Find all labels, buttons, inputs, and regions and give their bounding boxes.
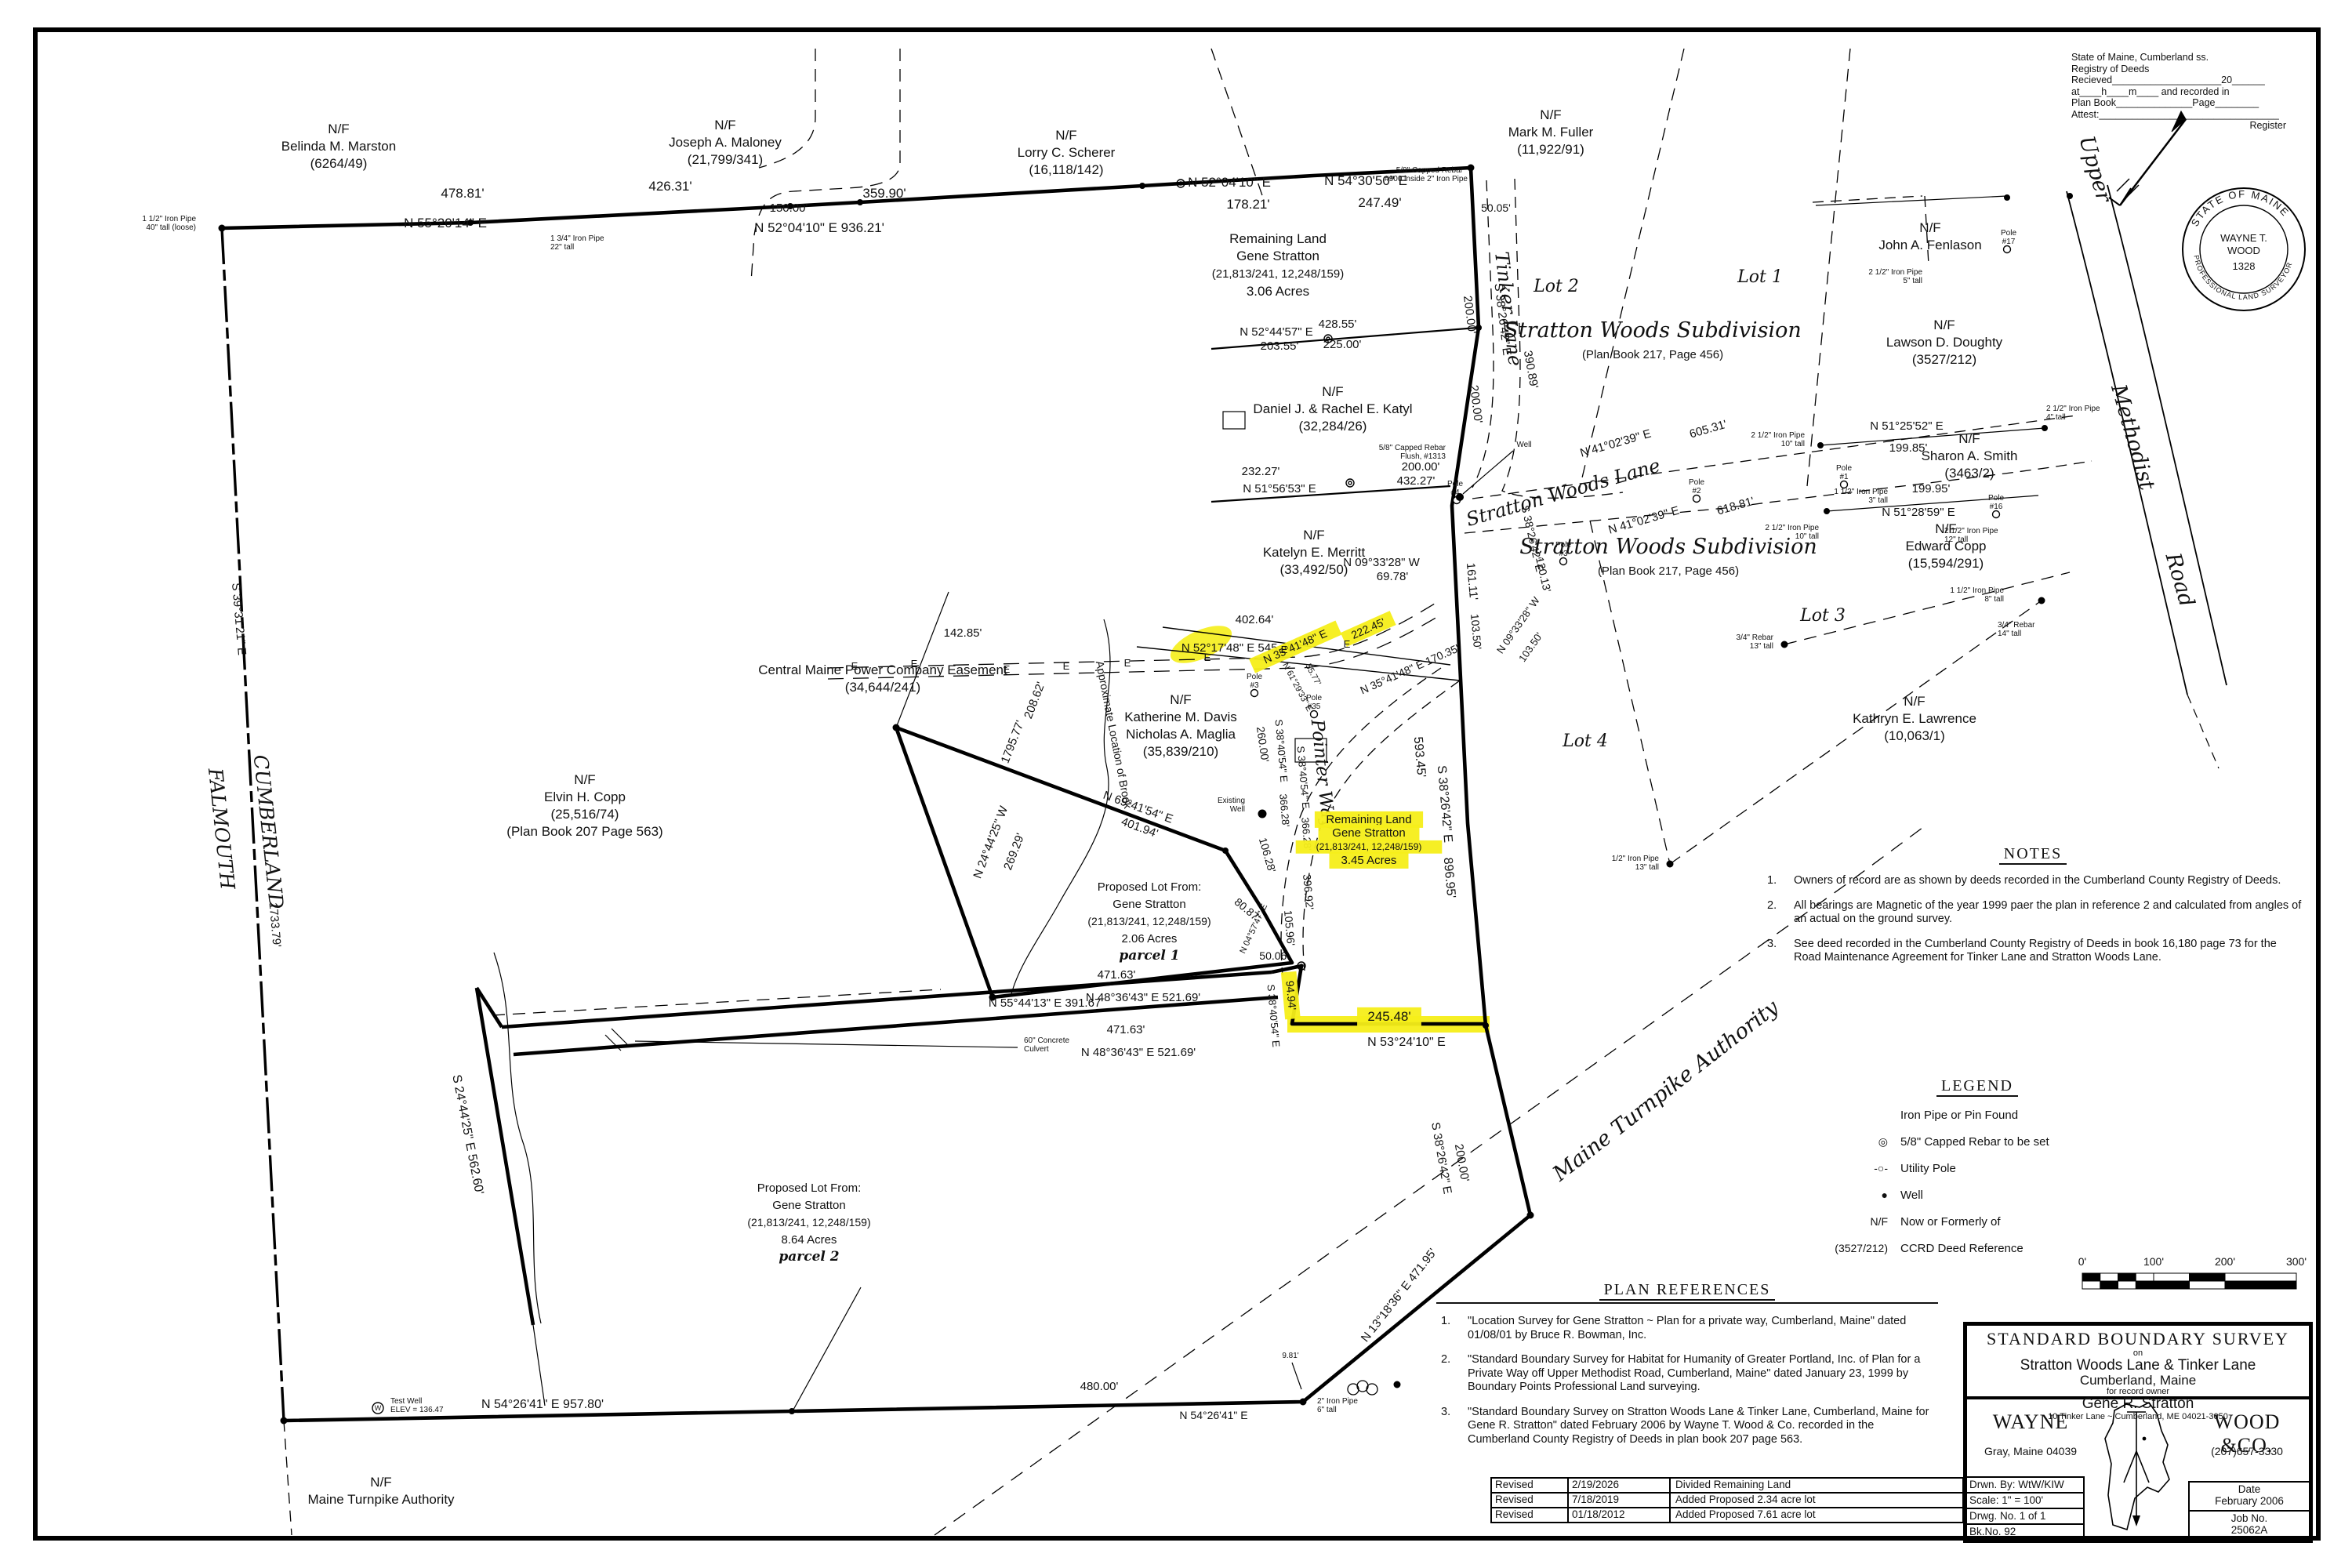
map-label: 1 1/2" Iron Pipe — [1950, 586, 2004, 595]
map-label: 8" tall — [1984, 595, 2004, 604]
registry-line: Registry of Deeds — [2071, 64, 2291, 75]
map-label: parcel 1 — [1119, 948, 1179, 964]
map-label: S 38°26'42" E — [1428, 1121, 1454, 1195]
map-label: 0' — [2078, 1255, 2086, 1268]
map-label: (21,813/241, 12,248/159) — [747, 1216, 870, 1229]
map-label: S 38°40'54" E — [1295, 746, 1312, 810]
map-label: E — [1344, 638, 1351, 650]
map-label: Well — [1230, 805, 1245, 814]
legend-label: Well — [1900, 1189, 1923, 1202]
legend-symbol: ● — [1820, 1189, 1900, 1201]
map-label: E — [1281, 644, 1288, 655]
well-icons — [372, 494, 1464, 1414]
survey-title: STANDARD BOUNDARY SURVEY — [1967, 1329, 2309, 1349]
map-label: Nicholas A. Maglia — [1126, 727, 1236, 742]
map-label: N/F — [714, 118, 735, 132]
revision-description: Added Proposed 2.34 acre lot — [1671, 1494, 1962, 1507]
map-label: 480.00' — [1080, 1380, 1119, 1393]
map-label: N 53°24'10" E — [1367, 1036, 1446, 1049]
map-label: 593.45' — [1411, 736, 1428, 778]
map-labels: 478.81'N 55°20'14" E426.31'150.00'359.90… — [142, 107, 2307, 1507]
map-label: #1 — [1839, 473, 1849, 481]
map-label: 432.27' — [1397, 474, 1436, 488]
map-label: (34,644/241) — [845, 680, 920, 695]
date-value: February 2006 — [2190, 1495, 2309, 1507]
map-label: 3/4" Rebar — [1998, 621, 2035, 630]
map-label: 199.85' — [1889, 441, 1928, 455]
map-label: 200' — [2215, 1255, 2235, 1268]
map-label: 150.00' — [770, 201, 808, 215]
map-label: 22" tall — [550, 243, 574, 252]
map-label: 3/4" Rebar — [1737, 633, 1774, 642]
map-label: 2 1/2" Iron Pipe — [1868, 268, 1922, 277]
map-label: 105.96' — [1282, 909, 1298, 946]
map-label: Upper — [2074, 133, 2116, 206]
map-label: 50.05' — [1481, 201, 1511, 214]
map-label: Lawson D. Doughty — [1886, 335, 2003, 350]
map-label: Existing — [1218, 797, 1245, 805]
map-label: Lot 2 — [1533, 277, 1579, 296]
map-label: #35 — [1308, 702, 1321, 711]
map-label: 103.50' — [1516, 630, 1545, 664]
map-label: N/F — [328, 122, 349, 136]
map-label: #900 inside 2" Iron Pipe — [1385, 175, 1468, 183]
map-label: 618.81' — [1715, 495, 1756, 518]
map-label: 13" tall — [1750, 642, 1773, 651]
map-label: Pole — [1836, 464, 1852, 473]
firm-name-left: WAYNE — [1972, 1410, 2089, 1434]
survey-location: Stratton Woods Lane & Tinker Lane — [1967, 1358, 2309, 1374]
map-label: N 52°04'10" E 936.21' — [754, 220, 884, 235]
map-label: N 54°26'41" E 957.80' — [481, 1398, 604, 1411]
map-label: Lot 1 — [1737, 267, 1783, 287]
map-label: Remaining Land — [1326, 813, 1411, 826]
monument-symbols — [219, 165, 2073, 1424]
map-label: 208.62' — [1022, 680, 1047, 720]
map-label: 200.00' — [1467, 384, 1485, 424]
map-label: Pole — [1247, 673, 1262, 681]
map-label: #17 — [2002, 238, 2016, 246]
revision-row: Revised 01/18/2012 Added Proposed 7.61 a… — [1490, 1507, 1964, 1523]
map-label: N 35°41'48" E 170.35' — [1358, 641, 1461, 696]
map-label: 402.64' — [1236, 613, 1274, 626]
map-label: 120.13' — [1534, 556, 1554, 593]
map-label: N/F — [1919, 220, 1940, 235]
map-label: (21,799/341) — [688, 152, 763, 167]
map-label: 94.94' — [1283, 980, 1298, 1011]
map-label: 40" tall (loose) — [146, 223, 196, 232]
legend-symbol: N/F — [1820, 1215, 1900, 1228]
legend-label: Utility Pole — [1900, 1162, 1956, 1175]
map-label: Mark M. Fuller — [1508, 125, 1594, 140]
map-label: N 41°02'39" E — [1579, 427, 1653, 460]
map-label: N 09°33'28" W — [1343, 556, 1420, 569]
legend-symbol: -○- — [1820, 1162, 1900, 1174]
map-label: Test Well — [390, 1397, 422, 1406]
map-label: 1795.77' — [999, 719, 1027, 766]
map-label: Gene Stratton — [1236, 249, 1319, 263]
map-label: 13" tall — [1635, 863, 1659, 872]
map-label: 1733.79' — [267, 902, 284, 947]
map-label: 5/8" Capped Rebar — [1396, 166, 1464, 175]
legend-label: 5/8" Capped Rebar to be set — [1900, 1135, 2049, 1149]
map-label: 103.50' — [1468, 613, 1484, 650]
note-item: 3.See deed recorded in the Cumberland Co… — [1762, 938, 2303, 965]
map-label: ELEV = 136.47 — [390, 1406, 444, 1414]
map-label: S 38°40'54" E — [1273, 719, 1290, 783]
map-label: 1 1/2" Iron Pipe — [1834, 488, 1888, 496]
stamp-arc-top: STATE OF MAINE — [2189, 188, 2292, 228]
map-label: Gene Stratton — [772, 1199, 845, 1212]
map-label: 5/8" Capped Rebar — [1379, 444, 1446, 452]
map-label: 300' — [2286, 1255, 2307, 1268]
map-label: 366.28' — [1277, 793, 1292, 827]
map-label: N/F — [370, 1475, 391, 1490]
legend-label: Iron Pipe or Pin Found — [1900, 1109, 2018, 1122]
map-label: Central Maine Power Company Easement — [758, 662, 1007, 677]
sheet-border — [35, 30, 2318, 1538]
legend-item: N/F Now or Formerly of — [1820, 1215, 2134, 1229]
map-label: 3.45 Acres — [1341, 854, 1397, 867]
legend-title: LEGEND — [1820, 1077, 2134, 1095]
map-label: Joseph A. Maloney — [669, 135, 782, 150]
map-label: (Plan Book 207 Page 563) — [506, 824, 662, 839]
iron-pipe-found-icons — [219, 165, 2073, 1424]
map-label: parcel 2 — [779, 1249, 839, 1265]
map-label: 60" Concrete — [1024, 1036, 1069, 1045]
map-label: 200.00' — [1452, 1143, 1472, 1183]
map-label: 426.31' — [648, 179, 691, 194]
divider — [1436, 1302, 1938, 1304]
map-label: 142.85' — [944, 626, 982, 640]
map-label: Remaining Land — [1229, 231, 1327, 246]
map-label: Maine Turnpike Authority — [1548, 995, 1784, 1187]
map-label: Sharon A. Smith — [1922, 448, 2018, 463]
map-label: 245.48' — [1367, 1009, 1410, 1024]
title-block: STANDARD BOUNDARY SURVEY on Stratton Woo… — [1963, 1322, 2313, 1543]
map-label: 1/2" Iron Pipe — [1612, 855, 1660, 863]
map-label: 390.89' — [1521, 350, 1541, 390]
notes-list: 1.Owners of record are as shown by deeds… — [1762, 874, 2303, 965]
legend-symbol: (3527/212) — [1820, 1242, 1900, 1254]
map-label: (21,813/241, 12,248/159) — [1212, 267, 1344, 281]
map-label: 178.21' — [1226, 197, 1269, 212]
map-label: 478.81' — [441, 186, 484, 201]
note-item: 2.All bearings are Magnetic of the year … — [1762, 899, 2303, 927]
map-label: 10" tall — [1795, 532, 1819, 541]
map-label: Proposed Lot From: — [757, 1181, 862, 1195]
drawing-number: Drwg. No. 1 of 1 — [1967, 1508, 2083, 1523]
registry-line: at____h____m____ and recorded in — [2071, 86, 2291, 98]
map-label: 4" tall — [2046, 413, 2066, 422]
revision-date: 01/18/2012 — [1569, 1508, 1671, 1522]
legend-item: ◎ 5/8" Capped Rebar to be set — [1820, 1135, 2134, 1149]
map-label: Stratton Woods Subdivision — [1504, 318, 1802, 343]
map-label: (Plan Book 217, Page 456) — [1582, 348, 1723, 361]
map-label: 203.55' — [1261, 339, 1299, 353]
map-label: 896.95' — [1441, 857, 1457, 898]
map-label: N 55°20'14" E — [404, 216, 487, 230]
map-label: 3.06 Acres — [1247, 284, 1309, 299]
map-label: N 51°25'52" E — [1870, 419, 1943, 433]
map-label: Proposed Lot From: — [1098, 880, 1202, 894]
map-label: (15,594/291) — [1908, 556, 1984, 571]
map-label: S 24°44'25" E 562.60' — [449, 1073, 485, 1196]
map-label: 2 1/2" Iron Pipe — [1765, 524, 1819, 532]
map-label: Elvin H. Copp — [544, 789, 626, 804]
scale: Scale: 1" = 100' — [1967, 1492, 2083, 1508]
map-label: 471.63' — [1107, 1023, 1145, 1036]
stamp-name-2: WOOD — [2227, 245, 2260, 256]
map-label: 225.00' — [1323, 338, 1362, 351]
notes-block: NOTES 1.Owners of record are as shown by… — [1762, 845, 2303, 965]
map-label: 1 1/2" Iron Pipe — [142, 215, 196, 223]
wayne-wood-logo — [2091, 1401, 2185, 1534]
map-label: N/F — [1958, 431, 1980, 446]
note-item: 1.Owners of record are as shown by deeds… — [1762, 874, 2303, 888]
map-label: Katherine M. Davis — [1124, 710, 1237, 724]
drawing-info-table: Drwn. By: WtW/KIW Scale: 1" = 100' Drwg.… — [1965, 1476, 2085, 1541]
revision-description: Added Proposed 7.61 acre lot — [1671, 1508, 1962, 1522]
stamp-name-1: WAYNE T. — [2220, 232, 2267, 244]
map-label: Pole — [1689, 478, 1704, 487]
map-label: 605.31' — [1688, 418, 1729, 441]
map-label: E — [1063, 660, 1070, 672]
revision-label: Revised — [1492, 1494, 1569, 1507]
plan-references-block: PLAN REFERENCES 1."Location Survey for G… — [1436, 1281, 1938, 1446]
map-label: Kathryn E. Lawrence — [1853, 711, 1976, 726]
map-label: 269.29' — [1001, 831, 1027, 872]
job-value: 25062A — [2190, 1524, 2309, 1536]
map-label: Daniel J. & Rachel E. Katyl — [1253, 401, 1412, 416]
map-label: N 13°18'36" E 471.95' — [1359, 1246, 1440, 1345]
map-label: (11,922/91) — [1517, 142, 1584, 157]
plan-reference-item: 3."Standard Boundary Survey on Stratton … — [1436, 1406, 1938, 1447]
map-label: (32,284/26) — [1299, 419, 1367, 434]
notes-title: NOTES — [1762, 845, 2303, 863]
map-label: 161.11' — [1464, 562, 1480, 601]
map-label: #4 — [1450, 488, 1460, 497]
plan-reference-item: 2."Standard Boundary Survey for Habitat … — [1436, 1353, 1938, 1395]
survey-sheet: STATE OF MAINE PROFESSIONAL LAND SURVEYO… — [0, 0, 2352, 1568]
map-label: 222.45' — [1349, 615, 1387, 641]
map-label: N/F — [1540, 107, 1561, 122]
map-label: 50.06' — [1259, 949, 1289, 962]
map-label: N/F — [1303, 528, 1324, 543]
legend-item: ● Well — [1820, 1189, 2134, 1202]
svg-text:STATE OF MAINE: STATE OF MAINE — [2189, 188, 2292, 228]
map-label: Culvert — [1024, 1045, 1049, 1054]
survey-town: Cumberland, Maine — [1967, 1374, 2309, 1388]
map-label: W — [375, 1404, 382, 1412]
map-label: N 51°56'53" E — [1243, 482, 1316, 495]
legend-list: Iron Pipe or Pin Found ◎ 5/8" Capped Reb… — [1820, 1109, 2134, 1255]
map-label: Maine Turnpike Authority — [307, 1492, 455, 1507]
title-block-heading: STANDARD BOUNDARY SURVEY on Stratton Woo… — [1967, 1326, 2309, 1399]
map-label: 2 1/2" Iron Pipe — [1944, 527, 1998, 535]
map-label: N 51°28'59" E — [1882, 506, 1955, 519]
registry-line: Recieved____________________20______ — [2071, 74, 2291, 86]
legend-block: LEGEND Iron Pipe or Pin Found ◎ 5/8" Cap… — [1820, 1077, 2134, 1255]
map-label: Pole — [1988, 494, 2004, 503]
map-label: 471.63' — [1098, 968, 1136, 982]
legend-label: CCRD Deed Reference — [1900, 1242, 2024, 1255]
map-label: (33,492/50) — [1280, 562, 1348, 577]
map-label: 9.81' — [1282, 1352, 1298, 1360]
map-label: 10" tall — [1781, 440, 1805, 448]
revision-label: Revised — [1492, 1508, 1569, 1522]
registry-register: Register — [2071, 120, 2291, 132]
map-label: N/F — [1055, 128, 1076, 143]
map-label: Gene Stratton — [1332, 826, 1405, 840]
surveyor-stamp: STATE OF MAINE PROFESSIONAL LAND SURVEYO… — [2183, 188, 2305, 310]
legend-symbol: ◎ — [1820, 1135, 1900, 1149]
map-label: John A. Fenlason — [1878, 238, 1981, 252]
map-label: E — [1204, 652, 1211, 663]
map-label: (6264/49) — [310, 156, 368, 171]
map-label: Methodist — [2106, 381, 2159, 493]
map-label: 12" tall — [1944, 535, 1968, 544]
map-label: N/F — [1933, 318, 1955, 332]
firm-address: Gray, Maine 04039 — [1972, 1445, 2089, 1457]
map-label: S 39°31'21" E — [229, 583, 249, 656]
revision-date: 2/19/2026 — [1569, 1479, 1671, 1492]
map-label: N 52°44'57" E — [1240, 325, 1312, 339]
map-label: (3527/212) — [1912, 352, 1976, 367]
map-label: Gene Stratton — [1112, 898, 1185, 911]
map-label: 2.06 Acres — [1122, 932, 1178, 946]
map-label: (35,839/210) — [1143, 744, 1218, 759]
map-label: 232.27' — [1242, 465, 1280, 478]
map-label: N 52°04'10" E — [1188, 175, 1271, 190]
map-label: #3 — [1559, 550, 1568, 558]
map-label: N/F — [1322, 384, 1343, 399]
revision-row: Revised 2/19/2026 Divided Remaining Land — [1490, 1477, 1964, 1492]
legend-item: (3527/212) CCRD Deed Reference — [1820, 1242, 2134, 1255]
scale-bar — [2082, 1273, 2296, 1289]
map-label: 428.55' — [1319, 318, 1357, 331]
map-label: S 38°26'42" E — [1435, 765, 1455, 844]
map-label: E — [1004, 663, 1011, 675]
map-label: Lot 3 — [1799, 606, 1846, 626]
legend-item: Iron Pipe or Pin Found — [1820, 1109, 2134, 1122]
map-label: 2" Iron Pipe — [1317, 1397, 1358, 1406]
map-label: 6" tall — [1317, 1406, 1337, 1414]
map-label: 1 3/4" Iron Pipe — [550, 234, 604, 243]
revision-date: 7/18/2019 — [1569, 1494, 1671, 1507]
stamp-number: 1328 — [2233, 260, 2256, 272]
map-label: 396.92' — [1301, 873, 1316, 910]
map-label: 106.28' — [1257, 837, 1279, 874]
map-label: E — [911, 658, 918, 670]
map-label: N/F — [1170, 692, 1191, 707]
map-label: 247.49' — [1358, 195, 1401, 210]
map-label: Pole — [1555, 541, 1571, 550]
map-label: N 48°36'43" E 521.69' — [1086, 991, 1200, 1004]
map-label: 260.00' — [1254, 726, 1272, 763]
book-number: Bk.No. 92 — [1967, 1523, 2083, 1539]
map-label: #16 — [1990, 503, 2003, 511]
map-label: N 48°36'43" E 521.69' — [1081, 1046, 1196, 1059]
map-label: Pole — [2001, 229, 2016, 238]
map-label: 200.00' — [1402, 460, 1440, 474]
map-label: 2 1/2" Iron Pipe — [2046, 405, 2100, 413]
map-label: Lot 4 — [1562, 731, 1608, 751]
map-label: #3 — [1250, 681, 1259, 690]
map-label: 69.78' — [1377, 570, 1409, 583]
map-label: Lorry C. Scherer — [1018, 145, 1116, 160]
map-label: (16,118/142) — [1029, 162, 1103, 177]
map-label: FALMOUTH — [204, 766, 239, 891]
map-label: 14" tall — [1998, 630, 2021, 638]
revision-description: Divided Remaining Land — [1671, 1479, 1962, 1492]
map-label: (10,063/1) — [1884, 728, 1945, 743]
map-label: (25,516/74) — [551, 807, 619, 822]
job-label: Job No. — [2190, 1512, 2309, 1524]
map-label: N 41°02'39" E — [1607, 504, 1681, 537]
map-label: N/F — [574, 772, 595, 787]
registry-line: State of Maine, Cumberland ss. — [2071, 52, 2291, 64]
legend-label: Now or Formerly of — [1900, 1215, 2001, 1229]
map-label: (21,813/241, 12,248/159) — [1087, 915, 1210, 927]
map-label: E — [1124, 657, 1131, 669]
map-label: Belinda M. Marston — [281, 139, 396, 154]
map-label: 199.95' — [1912, 482, 1951, 495]
map-label: E — [851, 660, 858, 672]
registry-block: State of Maine, Cumberland ss. Registry … — [2071, 52, 2291, 132]
map-label: Well — [1516, 441, 1531, 449]
drawn-by: Drwn. By: WtW/KIW — [1967, 1478, 2083, 1492]
revision-label: Revised — [1492, 1479, 1569, 1492]
map-label: 3" tall — [1868, 496, 1888, 505]
map-label: 8.64 Acres — [782, 1233, 837, 1247]
plan-reference-item: 1."Location Survey for Gene Stratton ~ P… — [1436, 1315, 1938, 1342]
map-label: 359.90' — [862, 186, 906, 201]
plan-references-title: PLAN REFERENCES — [1436, 1281, 1938, 1299]
map-label: 2 1/2" Iron Pipe — [1751, 431, 1805, 440]
revision-row: Revised 7/18/2019 Added Proposed 2.34 ac… — [1490, 1492, 1964, 1507]
registry-line: Attest:_________________________________ — [2071, 109, 2291, 121]
map-label: (21,813/241, 12,248/159) — [1316, 841, 1422, 852]
map-label: Pole — [1447, 480, 1463, 488]
revision-table: Revised 2/19/2026 Divided Remaining Land… — [1490, 1477, 1964, 1523]
map-label: Flush, #1313 — [1400, 452, 1446, 461]
map-label: 100' — [2143, 1255, 2164, 1268]
plan-references-list: 1."Location Survey for Gene Stratton ~ P… — [1436, 1315, 1938, 1446]
map-label: 5" tall — [1903, 277, 1922, 285]
map-label: N/F — [1904, 694, 1925, 709]
legend-item: -○- Utility Pole — [1820, 1162, 2134, 1175]
map-label: Pole — [1306, 694, 1322, 702]
map-label: (Plan Book 217, Page 456) — [1598, 564, 1739, 578]
date-job-table: Date February 2006 Job No. 25062A — [2188, 1481, 2310, 1541]
map-label: #2 — [1692, 487, 1701, 495]
registry-line: Plan Book______________Page________ — [2071, 97, 2291, 109]
map-label: S 38°40'54" E — [1265, 984, 1283, 1048]
map-label: N 54°26'41" E — [1179, 1409, 1247, 1421]
firm-phone: (207)657-3330 — [2188, 1445, 2306, 1457]
map-label: (3463/2) — [1944, 466, 1994, 481]
date-label: Date — [2190, 1483, 2309, 1495]
